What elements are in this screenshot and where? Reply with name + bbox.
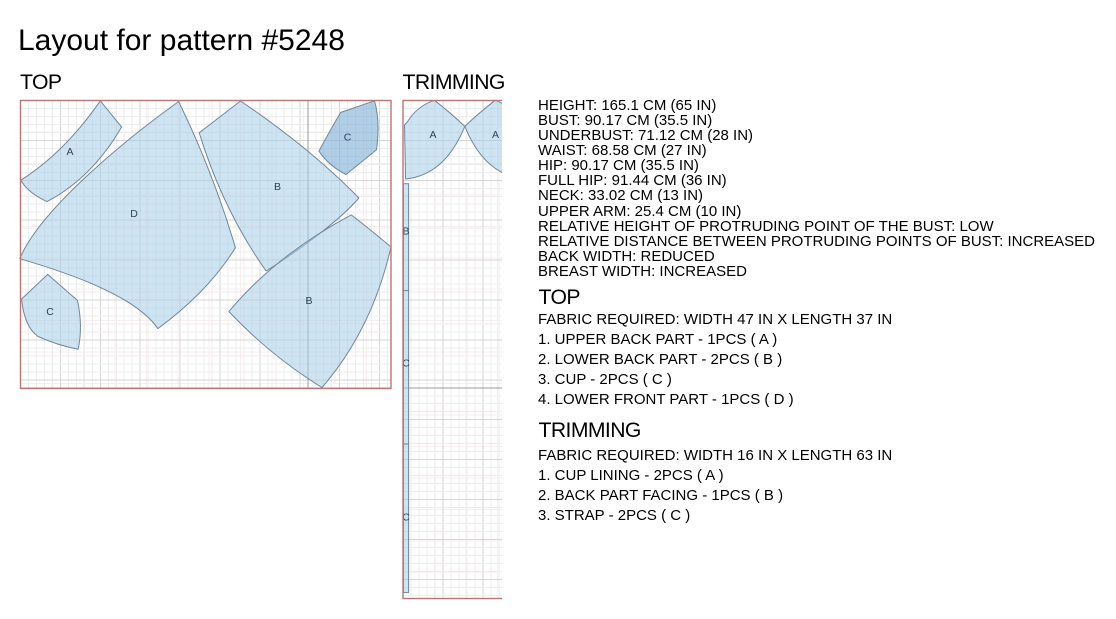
- svg-text:B: B: [305, 295, 312, 307]
- svg-text:B: B: [274, 181, 281, 193]
- svg-text:D: D: [130, 208, 138, 220]
- svg-text:C: C: [344, 132, 352, 144]
- svg-text:A: A: [66, 146, 73, 158]
- svg-text:A: A: [429, 129, 436, 141]
- svg-text:A: A: [492, 129, 499, 141]
- svg-text:C: C: [46, 306, 54, 318]
